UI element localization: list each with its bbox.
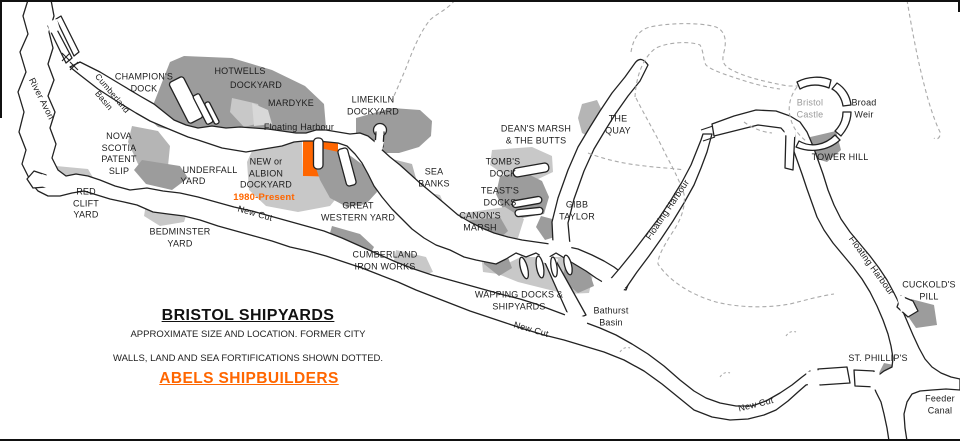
label-deans-marsh: DEAN'S MARSH & THE BUTTS	[501, 123, 571, 146]
label-limekiln-dockyard: LIMEKILN DOCKYARD	[347, 94, 399, 117]
label-cuckolds-pill: CUCKOLD'S PILL	[902, 279, 956, 302]
label-gibb-taylor: GIBB TAYLOR	[559, 199, 595, 222]
albion-dry-dock	[314, 138, 324, 169]
label-cumberland-iron-works: CUMBERLAND IRON WORKS	[352, 249, 417, 272]
label-mardyke: MARDYKE	[268, 98, 314, 110]
label-broad-weir: Broad Weir	[851, 97, 876, 120]
label-hotwells-2: DOCKYARD	[230, 80, 282, 92]
label-the-quay: THE QUAY	[605, 113, 631, 136]
label-hotwells-1: HOTWELLS	[214, 66, 265, 78]
label-floating-harbour-1: Floating Harbour	[264, 122, 334, 134]
label-st-phillips: ST. PHILLIP'S	[848, 353, 907, 365]
label-bedminster-yard: BEDMINSTER YARD	[149, 226, 210, 249]
fortification-dashed-lines	[392, 0, 940, 377]
label-underfall-1: UNDERFALL	[183, 165, 238, 177]
label-red-clift-yard: RED CLIFT YARD	[73, 187, 99, 222]
label-champions-dock: CHAMPION'S DOCK	[115, 71, 173, 94]
label-feeder-canal: Feeder Canal	[925, 393, 955, 416]
label-wapping-docks: WAPPING DOCKS & SHIPYARDS	[475, 289, 563, 312]
label-sea-banks: SEA BANKS	[418, 166, 450, 189]
label-albion-dockyard: NEW or ALBION DOCKYARD	[240, 157, 292, 192]
label-albion-period: 1980-Present	[233, 192, 295, 204]
label-bristol-castle: Bristol Castle	[797, 97, 824, 120]
page-title: BRISTOL SHIPYARDS	[162, 307, 335, 325]
label-canons-marsh: CANON'S MARSH	[459, 210, 501, 233]
label-underfall-2: YARD	[180, 176, 205, 188]
subtitle-line-2: WALLS, LAND AND SEA FORTIFICATIONS SHOWN…	[113, 353, 383, 364]
map-credit: ABELS SHIPBUILDERS	[159, 370, 338, 388]
map-subtitle: APPROXIMATE SIZE AND LOCATION. FORMER CI…	[113, 329, 383, 365]
label-great-western-yard: GREAT WESTERN YARD	[321, 200, 395, 223]
label-tombs-dock: TOMB'S DOCK	[486, 156, 521, 179]
label-nova-scotia: NOVA SCOTIA PATENT SLIP	[101, 131, 136, 177]
label-teasts-docks: TEAST'S DOCKS	[481, 185, 519, 208]
label-tower-hill: TOWER HILL	[812, 152, 869, 164]
bristol-shipyards-map: River AvonCumberland BasinCHAMPION'S DOC…	[0, 0, 960, 441]
subtitle-line-1: APPROXIMATE SIZE AND LOCATION. FORMER CI…	[130, 329, 365, 340]
label-bathurst-basin: Bathurst Basin	[593, 305, 628, 328]
